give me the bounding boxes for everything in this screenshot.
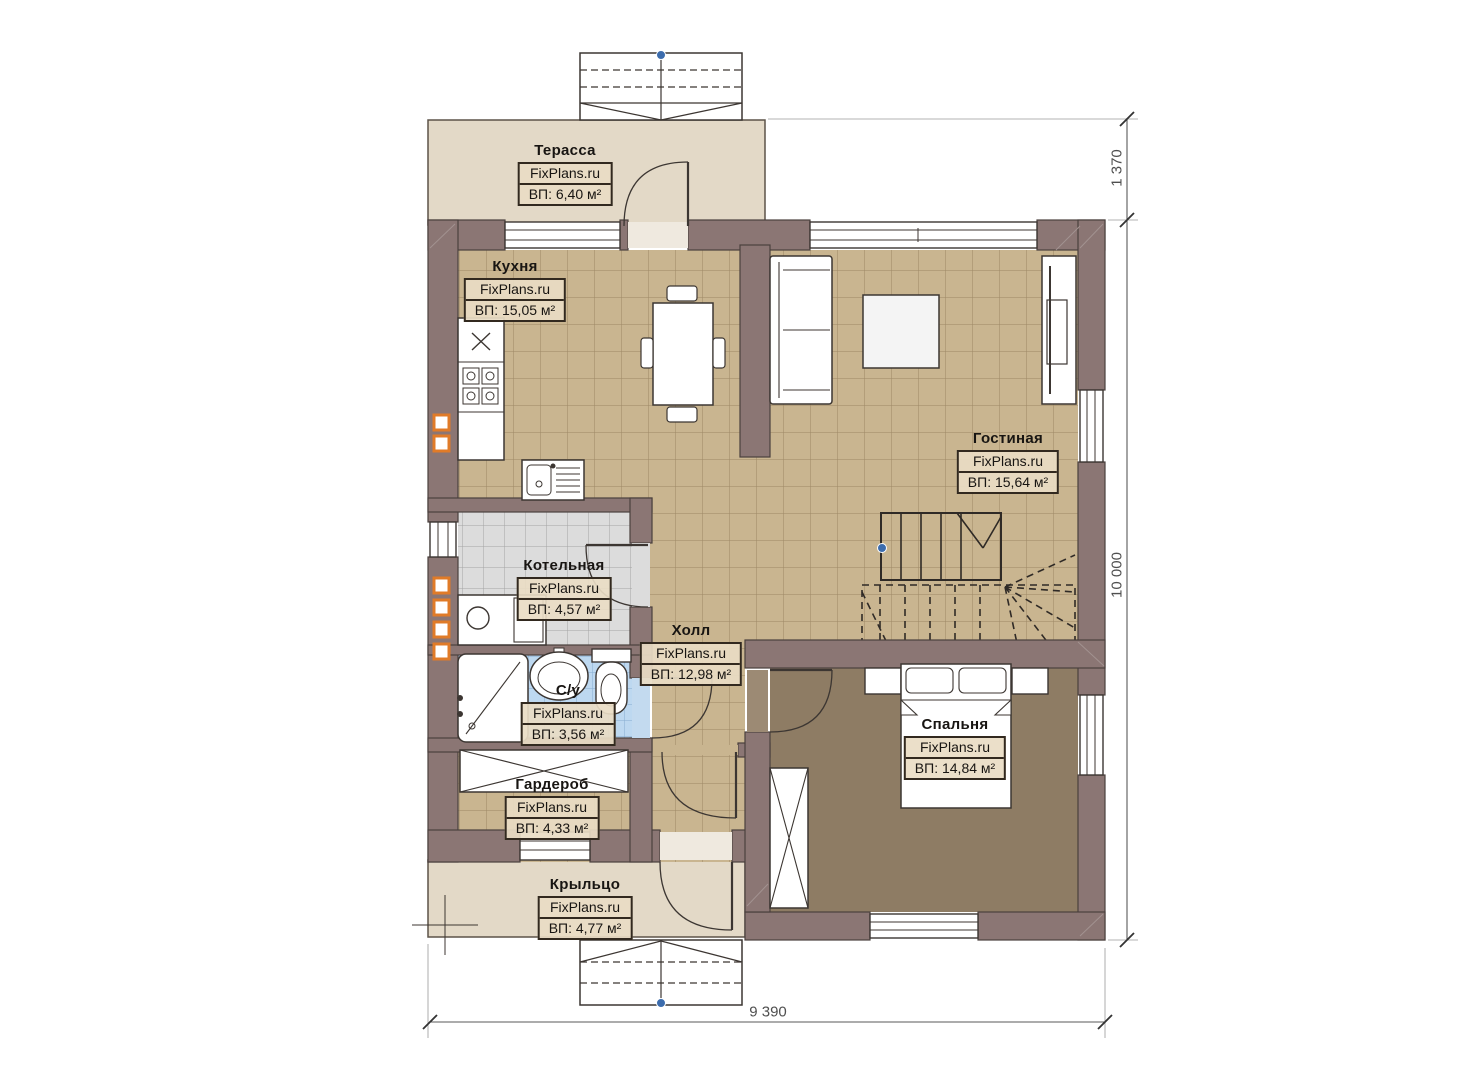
watermark-text: FixPlans.ru (520, 164, 611, 185)
vent-icon (434, 578, 449, 593)
floor-plan-drawing (0, 0, 1473, 1080)
room-title: Терасса (518, 142, 613, 159)
nightstand (865, 668, 901, 694)
room-info-box: FixPlans.ru ВП: 14,84 м² (904, 736, 1006, 780)
room-area: ВП: 4,33 м² (507, 819, 598, 838)
room-info-box: FixPlans.ru ВП: 12,98 м² (640, 642, 742, 686)
room-info-box: FixPlans.ru ВП: 3,56 м² (521, 702, 616, 746)
bedroom-right-window (1080, 695, 1103, 775)
bedroom-bottom-window (870, 914, 978, 938)
room-info-box: FixPlans.ru ВП: 4,77 м² (538, 896, 633, 940)
vent-icon (434, 622, 449, 637)
watermark-text: FixPlans.ru (642, 644, 740, 665)
room-title: Котельная (517, 557, 612, 574)
watermark-text: FixPlans.ru (959, 452, 1057, 473)
room-info-box: FixPlans.ru ВП: 15,05 м² (464, 278, 566, 322)
watermark-text: FixPlans.ru (540, 898, 631, 919)
room-label-terrace: Терасса FixPlans.ru ВП: 6,40 м² (518, 142, 613, 206)
living-top-window (810, 222, 1037, 248)
watermark-text: FixPlans.ru (906, 738, 1004, 759)
room-area: ВП: 6,40 м² (520, 185, 611, 204)
floor-plan: Терасса FixPlans.ru ВП: 6,40 м² Кухня Fi… (0, 0, 1473, 1080)
dimension-terrace-depth: 1 370 (1109, 149, 1126, 187)
porch-steps (580, 940, 742, 1008)
vent-icon (434, 415, 449, 430)
watermark-text: FixPlans.ru (466, 280, 564, 301)
room-info-box: FixPlans.ru ВП: 4,33 м² (505, 796, 600, 840)
room-area: ВП: 14,84 м² (906, 759, 1004, 778)
room-info-box: FixPlans.ru ВП: 15,64 м² (957, 450, 1059, 494)
room-label-hall: Холл FixPlans.ru ВП: 12,98 м² (640, 622, 742, 686)
vent-icon (434, 436, 449, 451)
terrace-steps (580, 51, 742, 121)
room-label-kitchen: Кухня FixPlans.ru ВП: 15,05 м² (464, 258, 566, 322)
room-info-box: FixPlans.ru ВП: 4,57 м² (517, 577, 612, 621)
dining-table (641, 286, 725, 422)
room-area: ВП: 4,77 м² (540, 919, 631, 938)
coffee-table (863, 295, 939, 368)
shower-icon (457, 654, 528, 742)
watermark-text: FixPlans.ru (519, 579, 610, 600)
room-area: ВП: 4,57 м² (519, 600, 610, 619)
room-area: ВП: 12,98 м² (642, 665, 740, 684)
room-area: ВП: 15,64 м² (959, 473, 1057, 492)
room-label-wardrobe: Гардероб FixPlans.ru ВП: 4,33 м² (505, 776, 600, 840)
pivot-dot (657, 51, 666, 60)
room-area: ВП: 15,05 м² (466, 301, 564, 320)
vent-icon (434, 600, 449, 615)
nightstand (1012, 668, 1048, 694)
pivot-dot (657, 999, 666, 1008)
dimension-house-depth: 10 000 (1109, 552, 1126, 598)
living-right-window (1080, 390, 1103, 462)
room-label-living: Гостиная FixPlans.ru ВП: 15,64 м² (957, 430, 1059, 494)
room-label-porch: Крыльцо FixPlans.ru ВП: 4,77 м² (538, 876, 633, 940)
room-info-box: FixPlans.ru ВП: 6,40 м² (518, 162, 613, 206)
watermark-text: FixPlans.ru (507, 798, 598, 819)
room-title: Гостиная (957, 430, 1059, 447)
pivot-dot (878, 544, 887, 553)
left-wall-window (430, 522, 456, 557)
room-label-bath: С/у FixPlans.ru ВП: 3,56 м² (521, 682, 616, 746)
sofa (770, 256, 832, 404)
room-title: Спальня (904, 716, 1006, 733)
bedroom-closet (770, 768, 808, 908)
room-title: Крыльцо (538, 876, 633, 893)
room-title: С/у (521, 682, 616, 699)
room-label-boiler: Котельная FixPlans.ru ВП: 4,57 м² (517, 557, 612, 621)
kitchen-sink-icon (522, 460, 584, 500)
dimension-house-width: 9 390 (749, 1004, 787, 1021)
room-label-bedroom: Спальня FixPlans.ru ВП: 14,84 м² (904, 716, 1006, 780)
kitchen-top-window (505, 222, 620, 248)
tv-stand (1042, 256, 1076, 404)
room-title: Гардероб (505, 776, 600, 793)
vent-icon (434, 644, 449, 659)
watermark-text: FixPlans.ru (523, 704, 614, 725)
room-title: Холл (640, 622, 742, 639)
room-title: Кухня (464, 258, 566, 275)
room-area: ВП: 3,56 м² (523, 725, 614, 744)
